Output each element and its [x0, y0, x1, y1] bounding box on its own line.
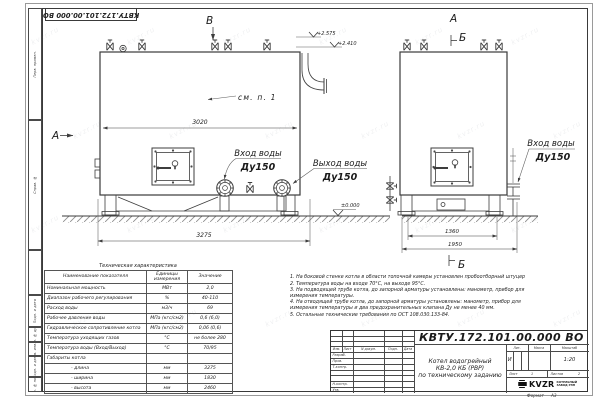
sheets-label: Листов	[551, 372, 564, 376]
drawing-title: Котел водогрейный КВ-2,0 КБ (РВР) по тех…	[414, 344, 506, 393]
safety-valve-icon	[225, 40, 231, 50]
note-item: 2. Температура воды на входе 70°С, на вы…	[290, 282, 548, 288]
ground-hatch-front	[62, 217, 390, 223]
col-data: Дата	[402, 347, 414, 351]
front-base-frame	[102, 195, 298, 215]
note-item: 3. На подводящей трубе котла, до запорно…	[290, 288, 548, 300]
table-row: Расход водым3/ч69	[45, 304, 233, 314]
table-row: - длинамм3275	[45, 364, 233, 374]
boiler-body-side	[400, 52, 507, 195]
svg-text:А: А	[51, 130, 59, 142]
note-item: 1. На боковой стенке котла в области топ…	[290, 275, 548, 281]
safety-valve-icon	[212, 40, 218, 50]
dim-3020-text: 3020	[192, 119, 207, 126]
outlet-flange-icon	[274, 180, 291, 197]
view-arrow-B-top: В	[206, 15, 213, 40]
kvzr-logo-icon	[518, 380, 527, 389]
safety-valve-icon	[264, 40, 270, 50]
elev-zero-text: ±0.000	[341, 203, 360, 209]
table-row: Диапазон рабочего регулирования%40-110	[45, 294, 233, 304]
table-row: Рабочее давление водыМПа (кгс/см2)0,6 (6…	[45, 314, 233, 324]
drawing-sheet: Перв. примен. Справ. № Подп. и дата Инв.…	[0, 0, 600, 400]
safety-valve-icon	[139, 40, 145, 50]
elevation-marks: +2.575 +2.410 ±0.000	[296, 31, 360, 216]
table-row: Гидравлическое сопротивление котлаМПа (к…	[45, 324, 233, 334]
format-note: ФорматА3	[527, 393, 557, 398]
side-wall-fitting	[95, 170, 100, 178]
table-row: Номинальная мощностьМВт2,0	[45, 284, 233, 294]
table-row: Габариты котла	[45, 354, 233, 364]
title-block: Изм. Лист N докум. Подп. Дата Разраб. Пр…	[330, 330, 588, 392]
row-razrab: Разраб.	[333, 353, 346, 357]
company-logo-text: KVZR	[529, 380, 555, 389]
see-note-text: см. п. 1	[238, 93, 277, 102]
format-value: А3	[551, 393, 557, 398]
safety-valve-icon	[107, 40, 113, 50]
sheet-value: 1	[531, 372, 533, 376]
svg-text:Ду150: Ду150	[535, 152, 571, 163]
col-docnum: N докум.	[353, 347, 384, 351]
lit-label: Лит.	[506, 346, 528, 350]
table-row: - высотамм2460	[45, 384, 233, 394]
sheets-value: 2	[578, 372, 580, 376]
mass-label: Масса	[528, 346, 550, 350]
tech-table: Наименование показателя Единицы измерени…	[44, 270, 233, 394]
view-arrow-A-front: А	[51, 130, 73, 142]
dim-1950-text: 1950	[448, 242, 462, 248]
col-list: Лист	[342, 347, 353, 351]
rear-pipe-valves	[386, 176, 396, 211]
tech-table-header-row: Наименование показателя Единицы измерени…	[45, 271, 233, 284]
svg-text:Вход воды: Вход воды	[527, 139, 575, 149]
col-izm: Изм.	[331, 347, 342, 351]
svg-text:В: В	[206, 15, 213, 27]
side-wall-fitting	[95, 159, 100, 167]
note-item: 4. На отводящей трубе котла, до запорной…	[290, 300, 548, 312]
doc-number: КВТУ.172.101.00.000 ВО	[414, 331, 589, 344]
side-view: А Б	[386, 13, 575, 271]
col-podp: Подп.	[384, 347, 402, 351]
sheet-label: Лист	[509, 372, 518, 376]
svg-text:Б: Б	[458, 259, 465, 271]
table-row: Температура воды (Вход/Выход)°С70/95	[45, 344, 233, 354]
scale-value: 1:20	[550, 357, 589, 363]
lit-value: И	[506, 357, 513, 363]
side-inlet-label: Вход воды Ду150	[518, 139, 575, 182]
front-view: 3020	[51, 15, 390, 246]
tech-characteristics: Техническая характеристика Наименование …	[44, 263, 232, 394]
company-name: КОТЕЛЬНЫЙ ЗАВОД РЭП	[557, 381, 578, 387]
outlet-water-label: Выход воды Ду150	[293, 159, 367, 184]
svg-text:Выход воды: Выход воды	[313, 159, 367, 169]
technical-notes: 1. На боковой стенке котла в области топ…	[290, 275, 548, 319]
flue-gas-outlet	[302, 53, 327, 94]
table-row: - ширинамм1830	[45, 374, 233, 384]
dim-3275-text: 3275	[196, 232, 211, 239]
inlet-flange-icon	[217, 180, 234, 197]
tech-table-title: Техническая характеристика	[44, 263, 232, 269]
row-tkontr: Т.контр.	[333, 365, 348, 369]
elev-2410-text: +2.410	[338, 41, 357, 47]
dim-1360-text: 1360	[445, 229, 459, 235]
row-utv: Утв.	[333, 388, 340, 392]
side-base-frame	[398, 195, 503, 215]
company-logo: KVZR КОТЕЛЬНЫЙ ЗАВОД РЭП	[508, 377, 587, 391]
table-row: Температура уходящих газов°Сне более 280	[45, 334, 233, 344]
pipe-valve-icon	[386, 197, 396, 203]
svg-text:Ду150: Ду150	[322, 172, 358, 183]
section-mark-B-bottom: Б	[449, 255, 465, 271]
vent-fitting-icon	[120, 45, 126, 51]
safety-valve-icon	[421, 40, 427, 50]
elev-2575-text: +2.575	[317, 31, 336, 37]
section-mark-B-top: А Б	[449, 13, 466, 46]
svg-text:Ду150: Ду150	[240, 162, 276, 173]
svg-text:Вход воды: Вход воды	[234, 149, 282, 159]
svg-text:Б: Б	[459, 32, 466, 44]
safety-valve-icon	[481, 40, 487, 50]
ground-hatch-side	[402, 217, 538, 223]
safety-valve-icon	[404, 40, 410, 50]
pipe-valve-icon	[386, 183, 396, 189]
safety-valve-icon	[496, 40, 502, 50]
scale-label: Масштаб	[550, 346, 589, 350]
svg-text:А: А	[449, 13, 457, 25]
row-nkontr: Н.контр.	[333, 382, 348, 386]
row-prov: Пров.	[333, 359, 343, 363]
note-item: 5. Остальные технические требования по О…	[290, 313, 548, 319]
